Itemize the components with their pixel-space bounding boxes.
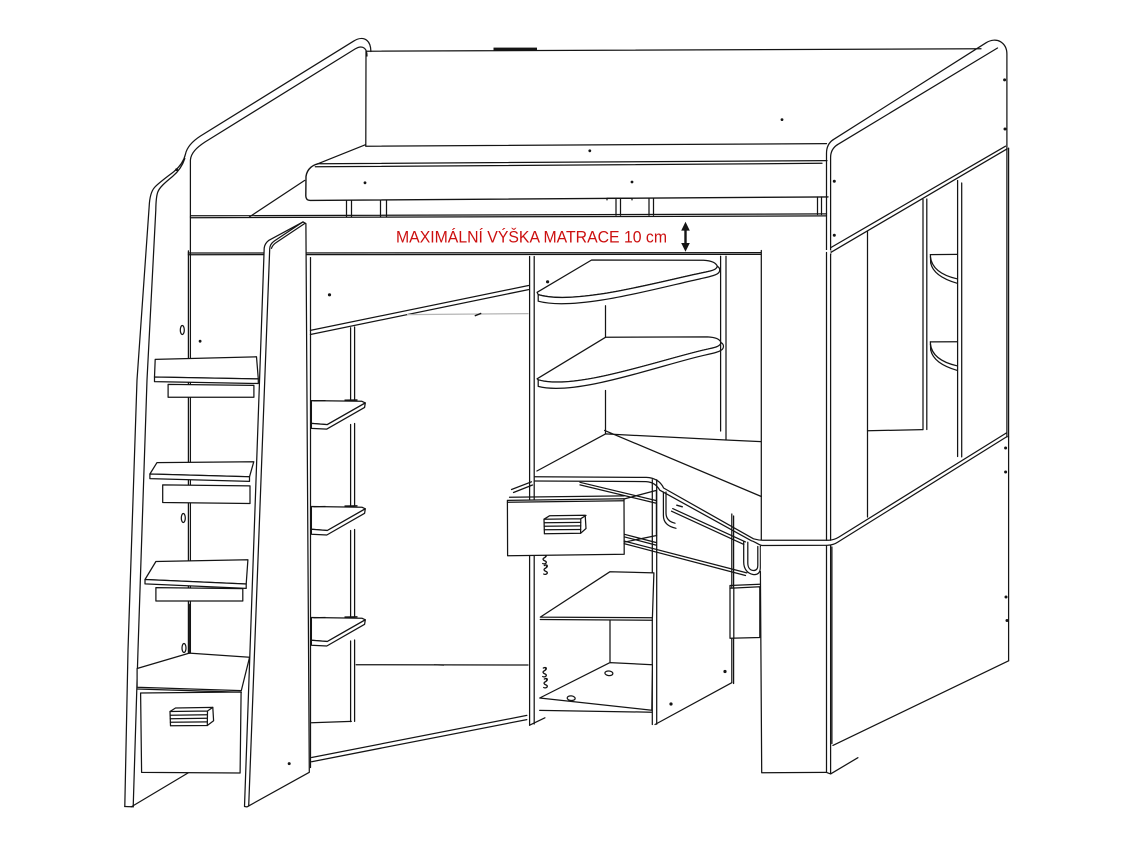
- svg-text:MAXIMÁLNÍ VÝŠKA MATRACE 10 cm: MAXIMÁLNÍ VÝŠKA MATRACE 10 cm: [396, 227, 667, 246]
